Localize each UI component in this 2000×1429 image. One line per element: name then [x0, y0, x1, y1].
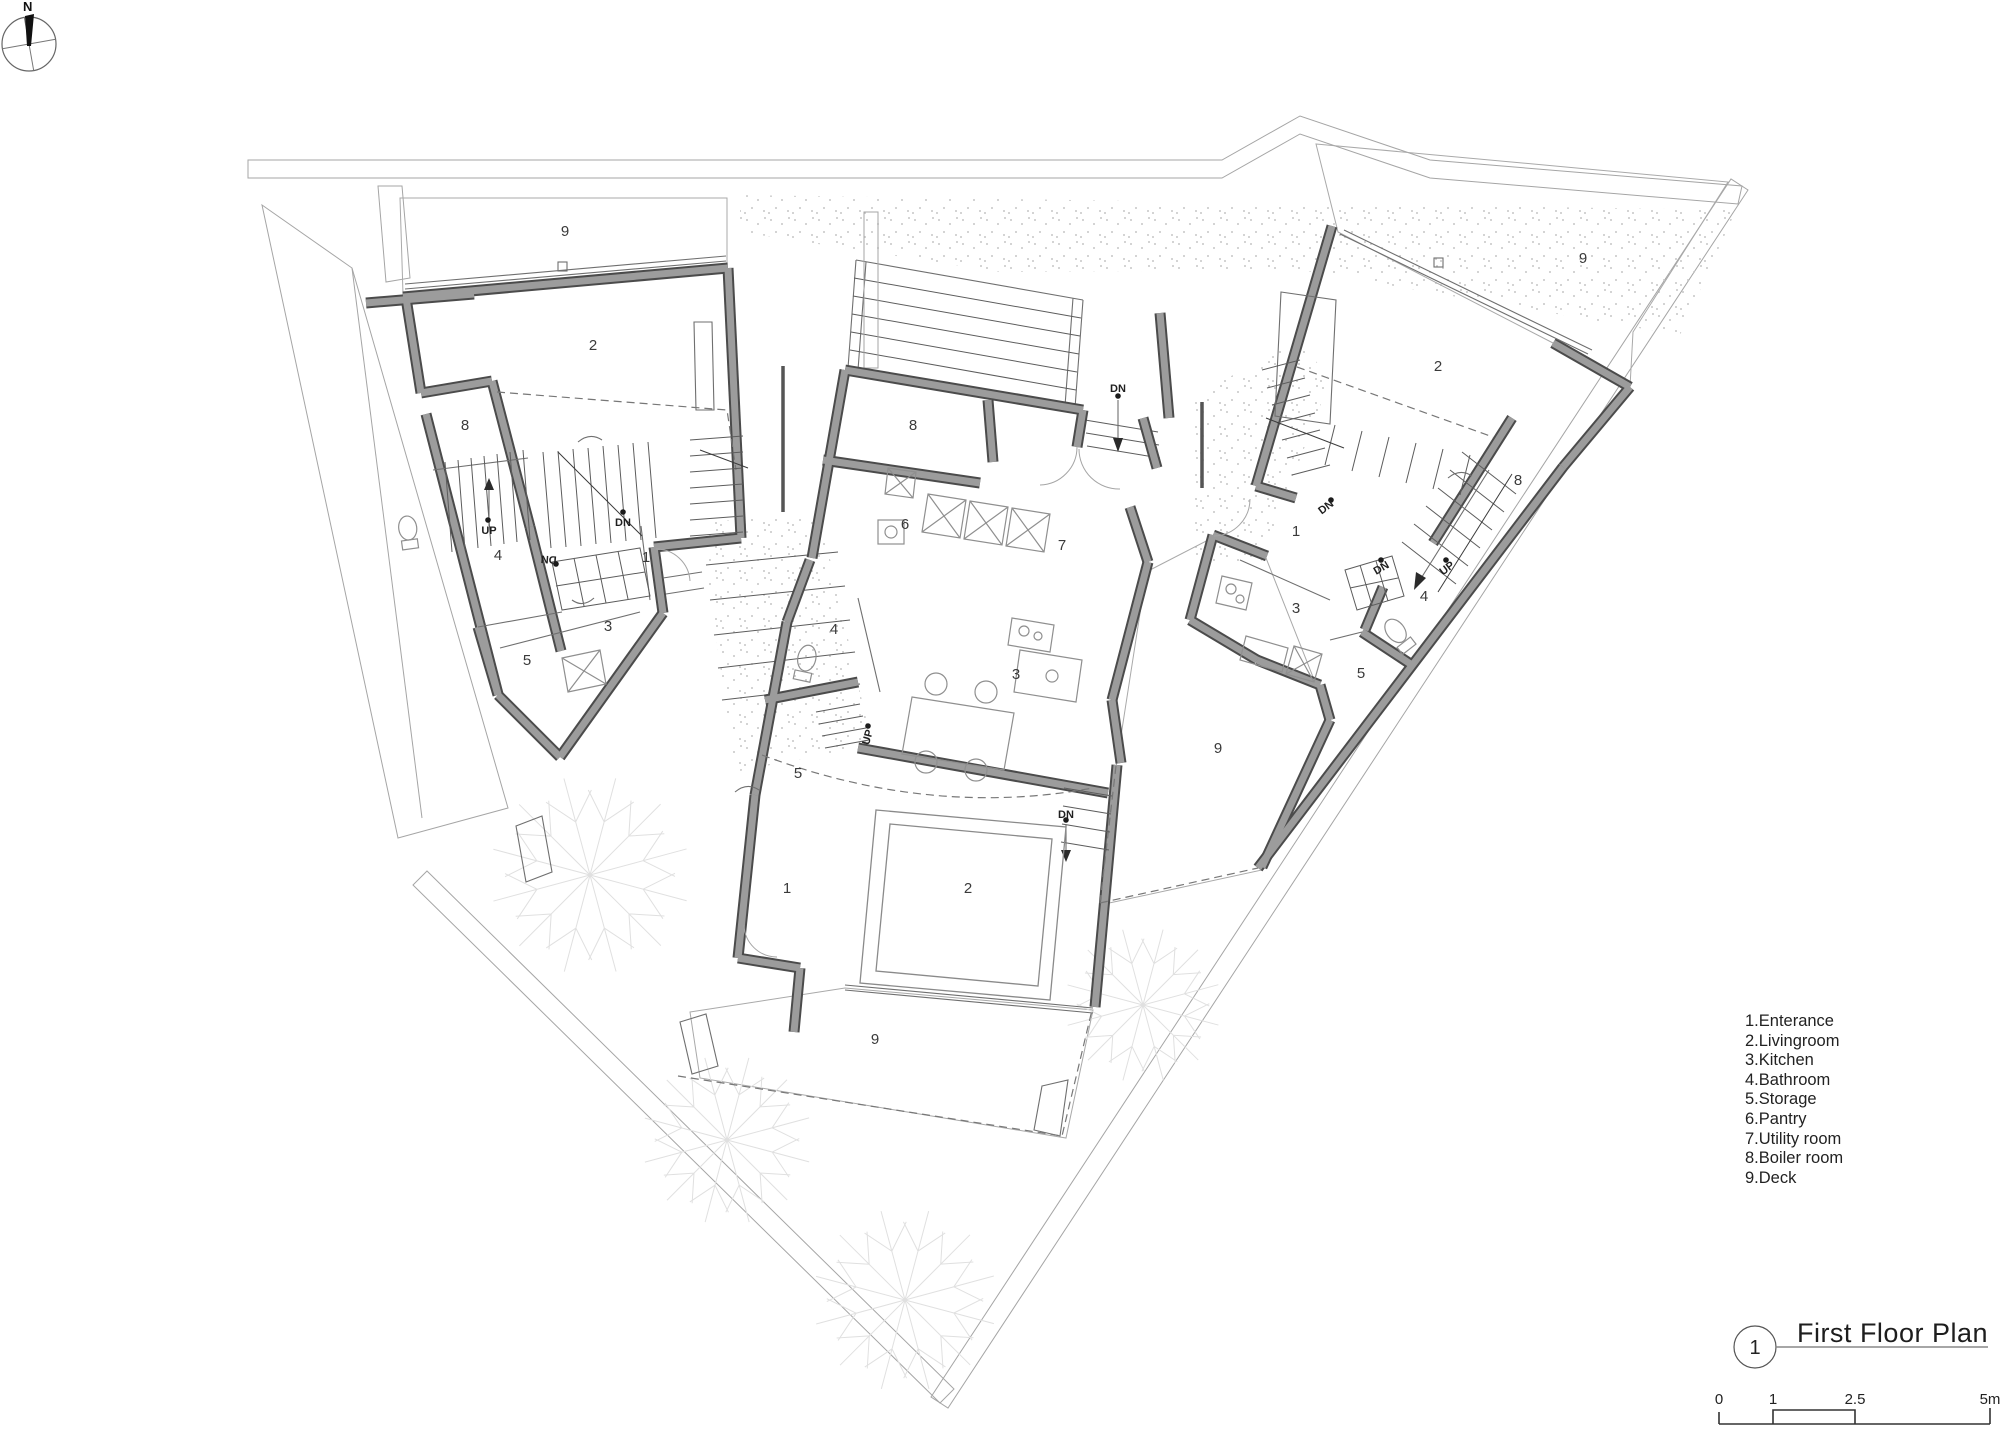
living-rug [860, 810, 1066, 1000]
walls [366, 226, 1630, 1032]
deck-center-unit [690, 988, 1093, 1138]
room-label: 4 [494, 547, 502, 564]
site-boundary-top-band [248, 116, 1742, 204]
room-label: 3 [1292, 600, 1300, 617]
stair-label: DN [1058, 809, 1074, 821]
room-label: 1 [783, 880, 791, 897]
planters [516, 816, 1068, 1136]
north-arrow: N [2, 0, 56, 71]
room-label: 9 [871, 1031, 879, 1048]
room-label: 4 [1420, 588, 1428, 605]
legend-item: 5.Storage [1745, 1090, 1843, 1110]
room-label: 2 [589, 337, 597, 354]
floor-plan-sheet: 928UPDNDN41358DN67435UP12DN992981DNUPDN4… [0, 0, 2000, 1429]
site-boundary-right-band [931, 179, 1748, 1408]
room-label: 5 [1357, 665, 1365, 682]
room-label: 8 [909, 417, 917, 434]
north-needle [25, 14, 34, 46]
legend-item: 3.Kitchen [1745, 1051, 1843, 1071]
planter [680, 1014, 718, 1074]
stairs [445, 360, 1516, 862]
scale-tick-label: 0 [1715, 1391, 1723, 1408]
legend-item: 6.Pantry [1745, 1110, 1843, 1130]
scale-tick-label: 5m [1980, 1391, 2000, 1408]
room-label: 9 [1214, 740, 1222, 757]
room-label: 9 [561, 223, 569, 240]
site-boundary-sliver [378, 186, 410, 282]
legend: 1.Enterance 2.Livingroom 3.Kitchen 4.Bat… [1745, 1012, 1843, 1188]
room-label: 5 [523, 652, 531, 669]
sheet-title: First Floor Plan [1790, 1318, 1988, 1349]
floor-plan-drawing: 928UPDNDN41358DN67435UP12DN992981DNUPDN4… [0, 0, 2000, 1429]
legend-item: 2.Livingroom [1745, 1032, 1843, 1052]
room-label: 1 [1292, 523, 1300, 540]
room-label: 1 [642, 549, 650, 566]
room-label: 7 [1058, 537, 1066, 554]
stove [1008, 618, 1054, 652]
site-boundary [248, 116, 1748, 1408]
room-label: 9 [1579, 250, 1587, 267]
legend-item: 8.Boiler room [1745, 1149, 1843, 1169]
toilet [397, 515, 419, 550]
site-boundary-left-band [413, 871, 954, 1403]
title-number: 1 [1749, 1337, 1760, 1359]
room-label: 8 [461, 417, 469, 434]
room-label: 5 [794, 765, 802, 782]
stair-label: UP [481, 525, 496, 537]
room-label: 2 [1434, 358, 1442, 375]
room-label: 4 [830, 621, 838, 638]
legend-item: 1.Enterance [1745, 1012, 1843, 1032]
sink [1046, 670, 1058, 682]
planter [1034, 1080, 1068, 1136]
chair [975, 681, 997, 703]
chair [925, 673, 947, 695]
tree [816, 1211, 994, 1389]
legend-item: 4.Bathroom [1745, 1071, 1843, 1091]
room-label: 3 [1012, 666, 1020, 683]
stair-label: DN [1110, 383, 1126, 395]
stair-label: DN [540, 552, 557, 565]
north-label: N [23, 0, 32, 14]
scale-tick-label: 1 [1769, 1391, 1777, 1408]
stair-label: DN [1372, 559, 1392, 577]
room-label: 8 [1514, 472, 1522, 489]
scale-bar: 0 1 2.5 5m [1715, 1391, 2000, 1424]
stair-label: UP [860, 728, 876, 746]
room-label: 2 [964, 880, 972, 897]
stair-label: DN [615, 517, 631, 529]
legend-item: 9.Deck [1745, 1169, 1843, 1189]
kitchen-island [1014, 650, 1082, 702]
room-label: 3 [604, 618, 612, 635]
scale-tick-label: 2.5 [1845, 1391, 1866, 1408]
room-label: 6 [901, 516, 909, 533]
stair-label: UP [1437, 559, 1456, 578]
garden-wall-stub [516, 816, 552, 882]
tree [493, 778, 686, 971]
legend-item: 7.Utility room [1745, 1130, 1843, 1150]
windows [405, 230, 1592, 1013]
